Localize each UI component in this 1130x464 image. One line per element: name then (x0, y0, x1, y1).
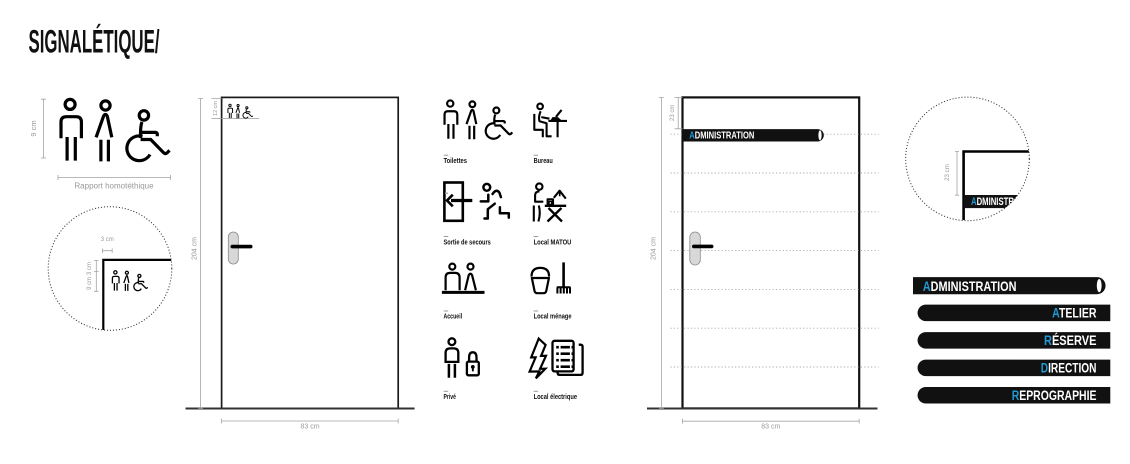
svg-text:Sortie de secours: Sortie de secours (444, 240, 491, 247)
svg-text:Rapport homotéthique: Rapport homotéthique (74, 182, 154, 191)
svg-text:ADMINISTRATION: ADMINISTRATION (923, 279, 1017, 294)
svg-text:Privé: Privé (444, 394, 456, 401)
svg-text:Accueil: Accueil (444, 314, 463, 321)
svg-text:ADMINISTR: ADMINISTR (971, 196, 1014, 208)
svg-text:Bureau: Bureau (534, 158, 553, 165)
svg-text:83 cm: 83 cm (761, 424, 780, 431)
svg-text:DIRECTION: DIRECTION (1041, 360, 1097, 375)
svg-text:Toilettes: Toilettes (444, 158, 468, 165)
svg-text:12 cm: 12 cm (213, 101, 219, 116)
svg-text:3 cm: 3 cm (101, 237, 114, 243)
svg-text:RÉSERVE: RÉSERVE (1044, 333, 1097, 348)
svg-text:ATELIER: ATELIER (1052, 305, 1097, 320)
svg-text:204 cm: 204 cm (192, 237, 199, 260)
svg-text:SIGNALÉTIQUE/: SIGNALÉTIQUE/ (29, 23, 160, 60)
svg-text:23 cm: 23 cm (670, 105, 676, 121)
svg-text:Local MATOU: Local MATOU (534, 240, 572, 247)
svg-text:204 cm: 204 cm (651, 237, 658, 260)
svg-text:83 cm: 83 cm (300, 424, 319, 431)
svg-text:ADMINISTRATION: ADMINISTRATION (689, 130, 754, 142)
svg-text:Local ménage: Local ménage (534, 314, 572, 321)
svg-text:23 cm: 23 cm (944, 164, 951, 181)
svg-text:Local électrique: Local électrique (534, 394, 577, 401)
svg-text:9 cm: 9 cm (29, 120, 38, 136)
svg-text:9 cm 3 cm: 9 cm 3 cm (87, 262, 93, 290)
svg-text:REPROGRAPHIE: REPROGRAPHIE (1012, 388, 1097, 403)
